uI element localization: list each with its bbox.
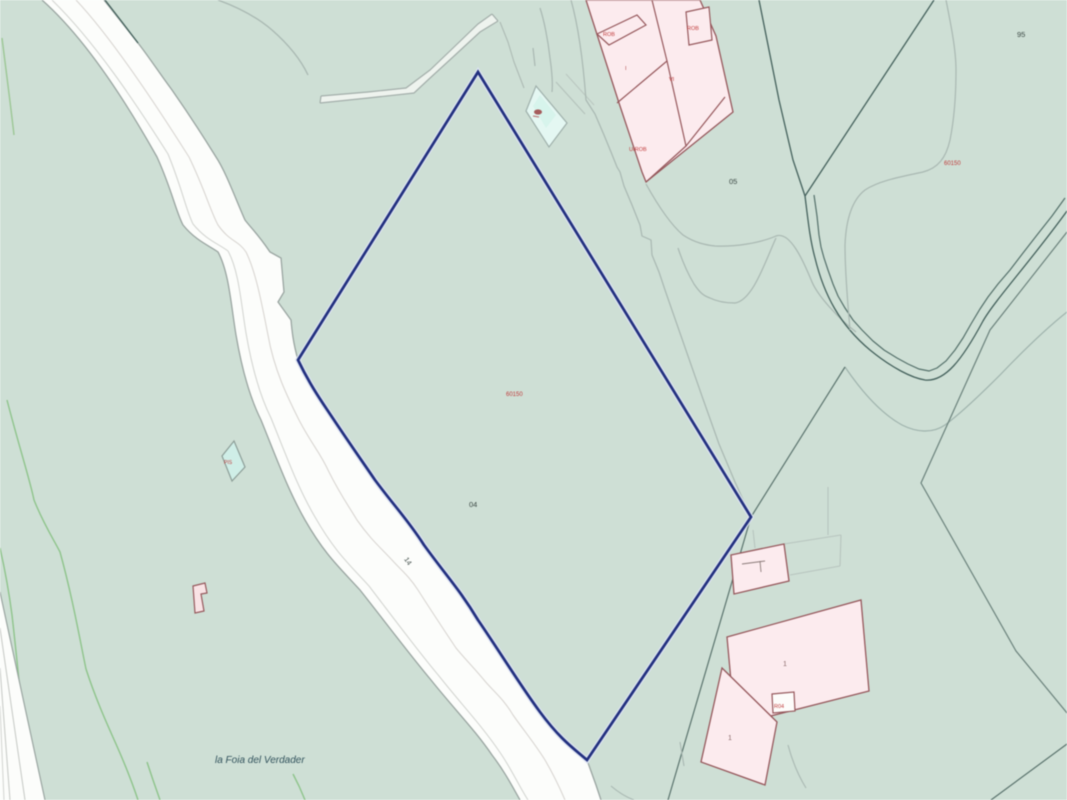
svg-text:95: 95 [1017, 30, 1025, 39]
svg-text:04: 04 [469, 500, 477, 509]
svg-text:PIS: PIS [224, 460, 233, 466]
svg-text:1: 1 [783, 661, 787, 668]
svg-text:ROB: ROB [603, 32, 615, 38]
svg-text:UrROB: UrROB [629, 147, 647, 153]
svg-text:VI: VI [669, 77, 675, 83]
svg-text:60150: 60150 [506, 392, 523, 398]
svg-text:05: 05 [729, 177, 737, 186]
svg-text:la Foia del Verdader: la Foia del Verdader [215, 755, 305, 766]
svg-text:R04: R04 [774, 704, 784, 710]
svg-text:60150: 60150 [944, 161, 961, 167]
svg-text:1: 1 [728, 735, 732, 742]
svg-text:ROB: ROB [687, 26, 699, 32]
